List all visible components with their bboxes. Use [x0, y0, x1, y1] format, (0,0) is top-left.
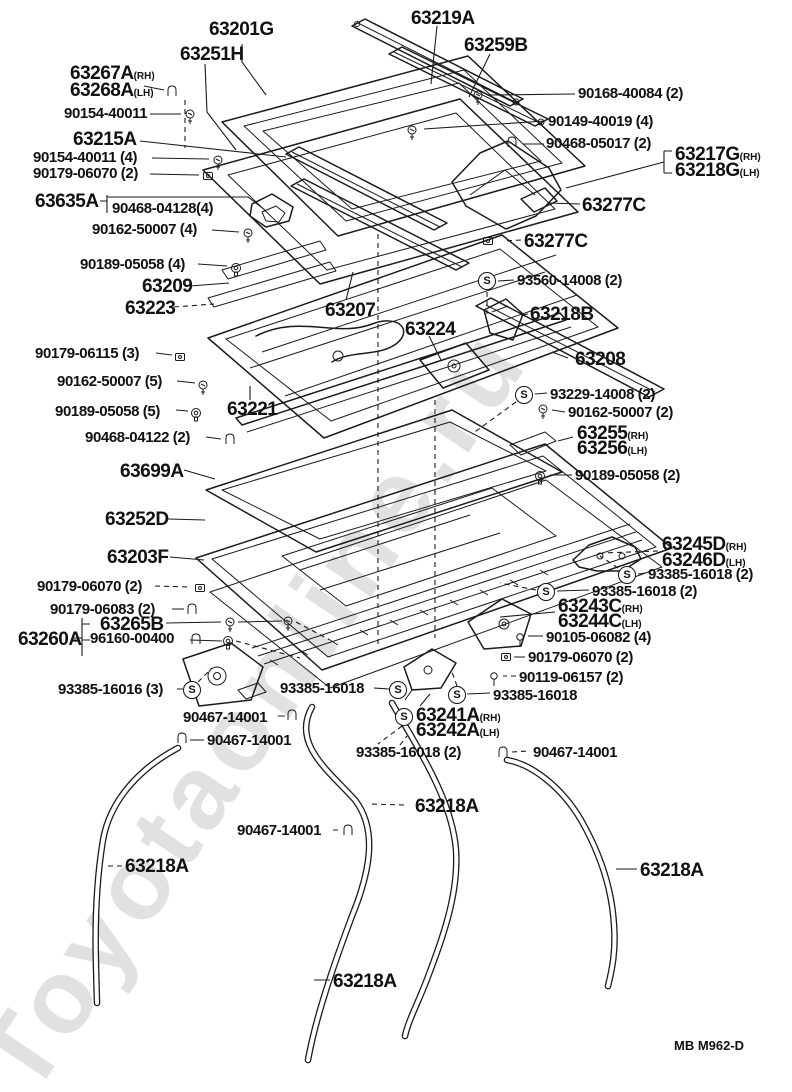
side-bracket-right [452, 141, 561, 229]
glass-ring-frame [206, 410, 562, 552]
standard-part-s-symbol: S [448, 686, 466, 704]
standard-part-s-symbol: S [537, 583, 555, 601]
hinge-and-brackets [404, 599, 531, 700]
drain-hose-right [507, 760, 615, 986]
clip-icon [226, 434, 234, 444]
standard-part-s-symbol: S [389, 681, 407, 699]
nut-icon [196, 585, 205, 592]
fastener-icons-layer [168, 86, 547, 835]
standard-part-s-symbol: S [478, 272, 496, 290]
standard-part-s-symbol: S [618, 566, 636, 584]
bolt-icon [491, 673, 497, 686]
screw-icon [226, 618, 234, 632]
standard-part-s-symbol: S [183, 681, 201, 699]
nut-icon [502, 654, 511, 661]
construction-lines [108, 100, 658, 866]
clip-icon [288, 710, 296, 720]
weatherstrip-ring [203, 99, 578, 284]
grommet-icon [192, 409, 201, 422]
screw-icon [539, 405, 547, 419]
clip-icon [499, 747, 507, 757]
guide-rail-upper [352, 19, 548, 126]
standard-part-s-symbol: S [395, 708, 413, 726]
sunroof-parts-diagram-page: Toyotaonline.ru [0, 0, 792, 1092]
clip-icon [168, 86, 176, 96]
leader-lines [74, 26, 672, 980]
screw-icon [214, 156, 222, 170]
diagram-artwork [0, 0, 792, 1092]
clip-icon [178, 733, 186, 743]
screw-icon [408, 126, 416, 140]
drawing-code: MB M962-D [674, 1038, 744, 1053]
clip-icon [188, 604, 196, 614]
clip-icon [192, 634, 200, 644]
screw-icon [199, 381, 207, 395]
screw-icon [284, 617, 292, 631]
drive-cable-frame [208, 235, 664, 571]
drain-hose-left [96, 748, 178, 1003]
nut-icon [176, 354, 185, 361]
drain-hose-center-right [392, 703, 456, 1036]
standard-part-s-symbol: S [515, 386, 533, 404]
screw-icon [186, 110, 194, 124]
sunroof-housing [196, 444, 672, 688]
drain-hose-center-left [306, 707, 369, 1060]
clip-icon [344, 825, 352, 835]
screw-icon [244, 229, 252, 243]
